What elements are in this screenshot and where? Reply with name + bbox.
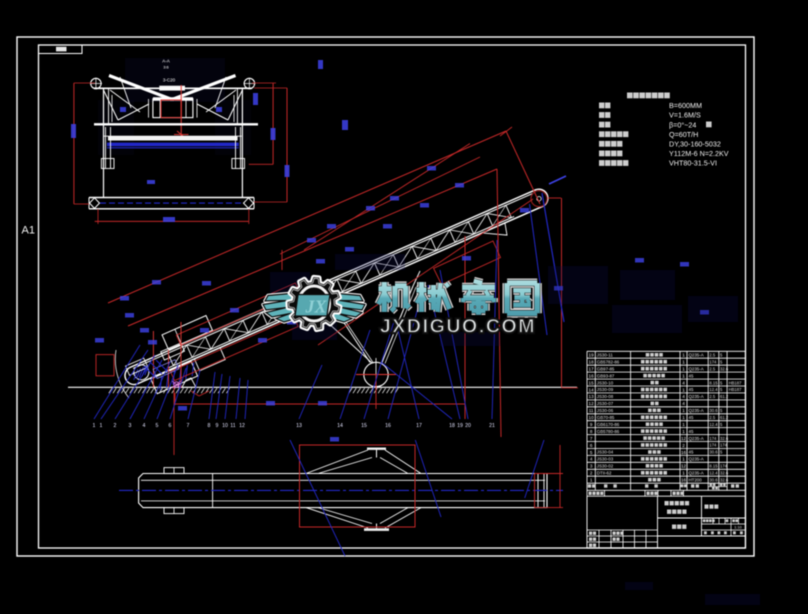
- svg-text:Q235-A: Q235-A: [689, 436, 704, 441]
- svg-text:1: 1: [682, 367, 685, 372]
- svg-text:9: 9: [590, 422, 593, 427]
- svg-text:2.5: 2.5: [709, 415, 715, 420]
- svg-text:8: 8: [590, 429, 593, 434]
- svg-text:21: 21: [489, 423, 495, 429]
- svg-text:GB70-85: GB70-85: [597, 415, 615, 420]
- svg-text:JS30-02: JS30-02: [597, 464, 614, 469]
- svg-text:6: 6: [590, 443, 593, 448]
- svg-text:17: 17: [589, 367, 595, 372]
- svg-text:30.6: 30.6: [709, 477, 718, 482]
- svg-text:1: 1: [682, 360, 685, 365]
- svg-text:8: 8: [208, 423, 211, 429]
- svg-text:1: 1: [682, 429, 685, 434]
- svg-text:HB187: HB187: [729, 387, 742, 392]
- svg-text:61.2: 61.2: [720, 415, 729, 420]
- svg-text:1: 1: [682, 373, 685, 378]
- svg-text:JX: JX: [304, 297, 327, 317]
- svg-text:61.2: 61.2: [720, 394, 729, 399]
- svg-text:3:6: 3:6: [163, 65, 169, 70]
- svg-text:JS30-06: JS30-06: [597, 408, 614, 413]
- svg-text:β=0°~24: β=0°~24: [669, 120, 696, 129]
- svg-text:3-C20: 3-C20: [163, 78, 176, 83]
- svg-text:Q235-A: Q235-A: [689, 353, 704, 358]
- svg-text:11: 11: [230, 423, 235, 429]
- svg-text:15: 15: [589, 380, 595, 385]
- svg-text:Q235-A: Q235-A: [689, 366, 704, 371]
- svg-text:GB6170-86: GB6170-86: [597, 422, 620, 427]
- svg-text:GB5780-86: GB5780-86: [597, 429, 620, 434]
- svg-text:1: 1: [590, 478, 593, 483]
- svg-text:13: 13: [589, 394, 595, 399]
- svg-text:18: 18: [589, 360, 595, 365]
- svg-text:13: 13: [296, 423, 302, 429]
- svg-text:12.4: 12.4: [709, 387, 718, 392]
- svg-text:JS30-04: JS30-04: [597, 450, 614, 455]
- svg-text:12: 12: [681, 436, 687, 441]
- svg-text:JXDIGUO.COM: JXDIGUO.COM: [380, 316, 536, 338]
- svg-text:1: 1: [682, 353, 685, 358]
- svg-text:Q235-A: Q235-A: [689, 471, 704, 476]
- svg-text:GB5782-86: GB5782-86: [597, 359, 620, 364]
- svg-text:11: 11: [589, 408, 594, 413]
- svg-text:2.5: 2.5: [709, 394, 715, 399]
- svg-text:V=1.6M/S: V=1.6M/S: [669, 111, 701, 120]
- svg-text:45: 45: [689, 415, 694, 420]
- svg-text:10: 10: [589, 415, 595, 420]
- svg-text:10: 10: [222, 423, 228, 429]
- svg-text:45: 45: [689, 373, 694, 378]
- svg-text:6: 6: [169, 423, 172, 429]
- svg-text:32.6: 32.6: [720, 471, 729, 476]
- svg-text:14: 14: [337, 423, 343, 429]
- svg-text:Q=60T/H: Q=60T/H: [669, 130, 698, 139]
- svg-text:1: 1: [682, 387, 685, 392]
- svg-text:2: 2: [590, 471, 593, 476]
- svg-text:174: 174: [720, 443, 728, 448]
- svg-text:JS30-07: JS30-07: [597, 401, 614, 406]
- svg-text:VHT80-31.5-VI: VHT80-31.5-VI: [669, 159, 717, 168]
- svg-text:16: 16: [681, 450, 687, 455]
- svg-text:JS30-10: JS30-10: [597, 380, 614, 385]
- svg-text:1: 1: [93, 423, 96, 429]
- svg-text:19: 19: [457, 423, 463, 429]
- svg-text:174: 174: [709, 359, 717, 364]
- svg-text:14: 14: [589, 387, 595, 392]
- svg-text:8.15: 8.15: [709, 380, 718, 385]
- svg-text:12: 12: [589, 401, 595, 406]
- svg-text:12: 12: [681, 464, 687, 469]
- svg-text:3: 3: [129, 423, 132, 429]
- svg-text:4: 4: [682, 394, 685, 399]
- svg-text:174: 174: [709, 436, 717, 441]
- svg-text:5: 5: [156, 423, 159, 429]
- svg-text:16: 16: [589, 373, 595, 378]
- svg-text:Y112M-6 N=2.2KV: Y112M-6 N=2.2KV: [669, 149, 729, 158]
- svg-text:30.6: 30.6: [709, 450, 718, 455]
- svg-text:1: 1: [682, 457, 685, 462]
- svg-text:12.4: 12.4: [709, 471, 718, 476]
- svg-text:GB97-85: GB97-85: [597, 366, 615, 371]
- svg-text:DY,30-160-5032: DY,30-160-5032: [669, 140, 721, 149]
- svg-text:2.5: 2.5: [709, 366, 715, 371]
- svg-text:18: 18: [449, 423, 455, 429]
- svg-text:45: 45: [689, 429, 694, 434]
- svg-text:GB93-87: GB93-87: [597, 373, 615, 378]
- svg-text:174: 174: [720, 464, 728, 469]
- svg-text:B=600MM: B=600MM: [669, 101, 702, 110]
- svg-text:HB187: HB187: [729, 380, 742, 385]
- svg-text:4: 4: [682, 380, 685, 385]
- svg-text:A1: A1: [22, 225, 35, 237]
- svg-text:32.6: 32.6: [720, 477, 729, 482]
- svg-text:30.6: 30.6: [709, 408, 718, 413]
- svg-text:17: 17: [416, 423, 422, 429]
- svg-text:2: 2: [682, 443, 685, 448]
- svg-text:1:10: 1:10: [734, 526, 741, 530]
- svg-text:32.6: 32.6: [720, 366, 729, 371]
- svg-text:19: 19: [589, 353, 595, 358]
- svg-text:DTII-62: DTII-62: [597, 471, 612, 476]
- svg-text:12: 12: [239, 423, 245, 429]
- svg-text:4: 4: [143, 423, 146, 429]
- svg-text:7: 7: [187, 423, 190, 429]
- svg-text:4: 4: [682, 401, 685, 406]
- svg-text:12.4: 12.4: [709, 422, 718, 427]
- svg-text:32.6: 32.6: [720, 436, 729, 441]
- svg-text:JS30-08: JS30-08: [597, 394, 614, 399]
- svg-text:7: 7: [590, 436, 593, 441]
- svg-text:9: 9: [216, 423, 219, 429]
- svg-text:16: 16: [385, 423, 391, 429]
- svg-text:2: 2: [114, 423, 117, 429]
- svg-text:1: 1: [682, 422, 685, 427]
- svg-text:1: 1: [682, 471, 685, 476]
- svg-text:1: 1: [682, 408, 685, 413]
- svg-text:20: 20: [465, 423, 471, 429]
- svg-text:8.15: 8.15: [709, 464, 718, 469]
- svg-text:A-A: A-A: [162, 59, 170, 64]
- svg-text:174: 174: [709, 443, 717, 448]
- svg-text:3: 3: [590, 464, 593, 469]
- svg-text:HT200: HT200: [689, 477, 703, 482]
- svg-text:45: 45: [689, 450, 694, 455]
- svg-text:16: 16: [681, 478, 687, 483]
- svg-text:JS30-09: JS30-09: [597, 387, 614, 392]
- svg-text:Q235-A: Q235-A: [689, 457, 704, 462]
- svg-text:Q235-A: Q235-A: [689, 408, 704, 413]
- svg-text:JS30-11: JS30-11: [597, 353, 614, 358]
- svg-text:15: 15: [361, 423, 367, 429]
- svg-text:1: 1: [682, 415, 685, 420]
- svg-text:5: 5: [590, 450, 593, 455]
- svg-text:1: 1: [100, 423, 103, 429]
- svg-text:JS30-03: JS30-03: [597, 457, 614, 462]
- svg-text:2.5: 2.5: [709, 353, 715, 358]
- svg-text:4: 4: [590, 457, 593, 462]
- svg-text:Q235-A: Q235-A: [689, 394, 704, 399]
- svg-text:45: 45: [689, 387, 694, 392]
